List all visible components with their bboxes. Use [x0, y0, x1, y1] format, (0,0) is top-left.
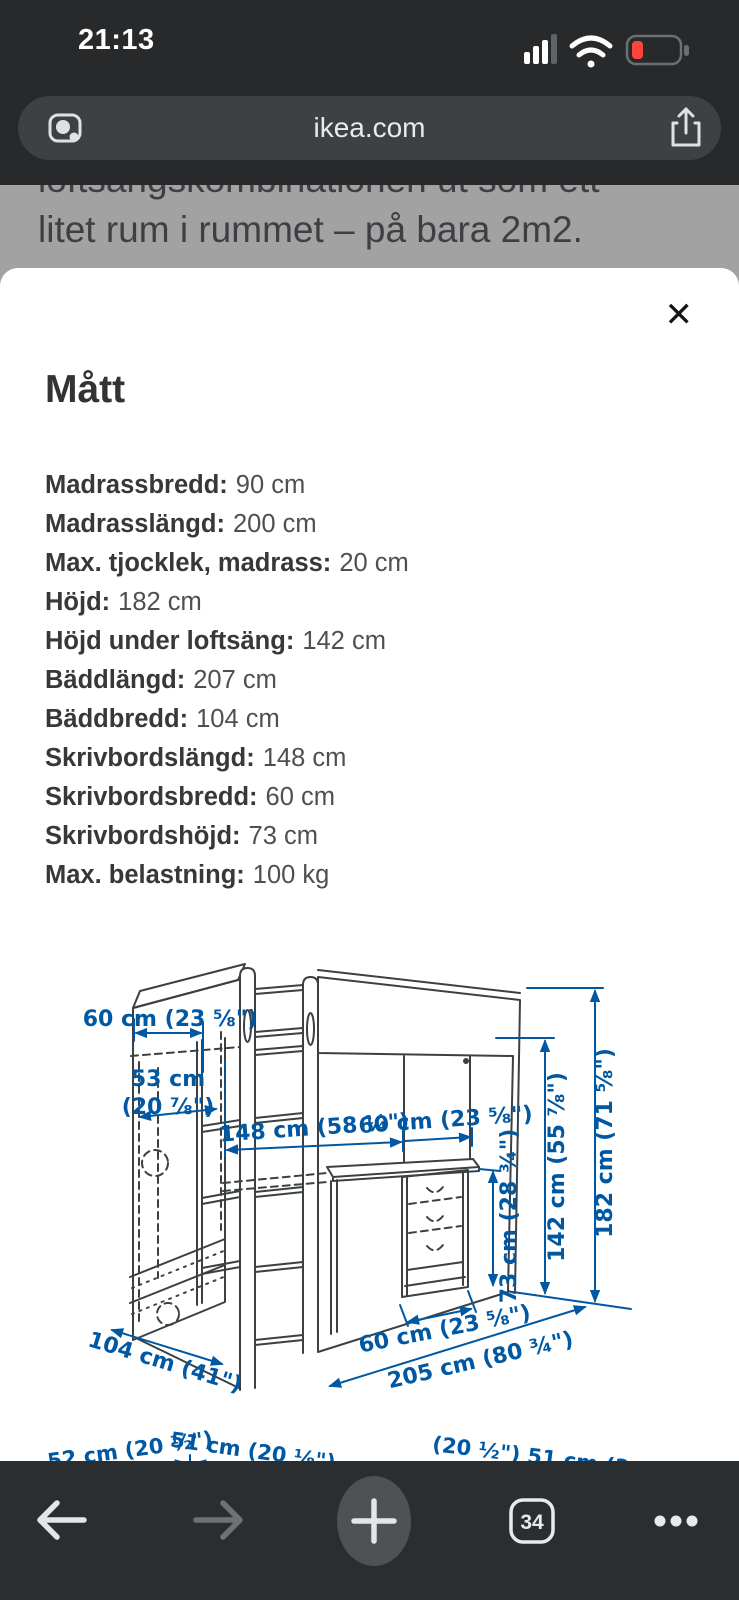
dim-desk-height: 73 cm (28 ¾")	[497, 1129, 522, 1304]
measurement-value: 207 cm	[193, 666, 277, 694]
dimmed-page-text: loftsängskombinationen ut som ett litet …	[0, 185, 739, 268]
url-text[interactable]: ikea.com	[0, 112, 739, 144]
measurement-row: Höjd:182 cm	[45, 583, 409, 622]
tab-count: 34	[520, 1511, 544, 1534]
status-time: 21:13	[78, 24, 155, 57]
tabs-button[interactable]: 34	[511, 1500, 553, 1542]
measurement-row: Skrivbordslängd:148 cm	[45, 739, 409, 778]
measurement-row: Höjd under loftsäng:142 cm	[45, 622, 409, 661]
measurement-value: 104 cm	[196, 705, 280, 733]
measurement-label: Bäddbredd:	[45, 705, 188, 733]
wifi-icon	[572, 38, 610, 68]
measurement-label: Höjd:	[45, 588, 110, 616]
dim-wardrobe-depth: 60 cm (23 ⅝")	[83, 1007, 258, 1032]
dim-bottom-right-partial: (20 ½") 51 cm (2	[431, 1432, 631, 1461]
measurements-sheet: ✕ Mått Madrassbredd:90 cm Madrasslängd:2…	[0, 268, 739, 1461]
measurement-value: 60 cm	[266, 783, 335, 811]
measurement-value: 20 cm	[339, 549, 408, 577]
dim-height-under-loft: 142 cm (55 ⅞")	[545, 1072, 570, 1262]
measurement-label: Max. belastning:	[45, 861, 245, 889]
forward-button[interactable]	[196, 1503, 240, 1537]
share-icon[interactable]	[663, 103, 709, 153]
dim-bottom-left-b: 51 cm (20 ⅛")	[169, 1428, 337, 1461]
measurement-label: Max. tjocklek, madrass:	[45, 549, 331, 577]
measurement-value: 148 cm	[263, 744, 347, 772]
measurement-value: 100 kg	[253, 861, 330, 889]
measurement-row: Max. belastning:100 kg	[45, 856, 409, 895]
back-button[interactable]	[40, 1503, 84, 1537]
measurement-label: Skrivbordshöjd:	[45, 822, 241, 850]
measurement-row: Madrasslängd:200 cm	[45, 505, 409, 544]
measurement-label: Skrivbordslängd:	[45, 744, 255, 772]
measurement-value: 182 cm	[118, 588, 202, 616]
page-text-line2: litet rum i rummet – på bara 2m2.	[38, 209, 583, 251]
browser-toolbar: 34	[0, 1461, 739, 1600]
dim-wardrobe-interior-2: (20 ⅞")	[122, 1095, 215, 1120]
measurement-row: Skrivbordsbredd:60 cm	[45, 778, 409, 817]
measurement-label: Höjd under loftsäng:	[45, 627, 294, 655]
measurement-row: Bäddlängd:207 cm	[45, 661, 409, 700]
measurement-value: 200 cm	[233, 510, 317, 538]
measurement-label: Bäddlängd:	[45, 666, 185, 694]
measurements-list: Madrassbredd:90 cm Madrasslängd:200 cm M…	[45, 466, 409, 895]
battery-icon	[627, 36, 689, 64]
measurement-label: Madrassbredd:	[45, 471, 228, 499]
measurement-row: Bäddbredd:104 cm	[45, 700, 409, 739]
sheet-title: Mått	[45, 368, 125, 412]
measurement-label: Skrivbordsbredd:	[45, 783, 258, 811]
measurement-row: Max. tjocklek, madrass:20 cm	[45, 544, 409, 583]
dim-wardrobe-interior-1: 53 cm	[131, 1067, 205, 1092]
signal-icon	[524, 34, 557, 64]
dimension-diagram: 60 cm (23 ⅝") 53 cm (20 ⅞") 148 cm (58 ¼…	[30, 920, 710, 1461]
close-icon[interactable]: ✕	[665, 298, 694, 332]
measurement-value: 73 cm	[249, 822, 318, 850]
dim-total-height: 182 cm (71 ⅝")	[593, 1048, 618, 1238]
browser-window: 21:13 ikea.com	[0, 0, 739, 1600]
menu-button[interactable]	[655, 1516, 698, 1527]
measurement-row: Madrassbredd:90 cm	[45, 466, 409, 505]
measurement-value: 142 cm	[302, 627, 386, 655]
measurement-label: Madrasslängd:	[45, 510, 225, 538]
measurement-value: 90 cm	[236, 471, 305, 499]
measurement-row: Skrivbordshöjd:73 cm	[45, 817, 409, 856]
browser-top-chrome: 21:13 ikea.com	[0, 0, 739, 185]
page-text-line1: loftsängskombinationen ut som ett	[38, 185, 600, 201]
new-tab-button[interactable]	[337, 1476, 411, 1566]
status-icons	[524, 28, 699, 76]
